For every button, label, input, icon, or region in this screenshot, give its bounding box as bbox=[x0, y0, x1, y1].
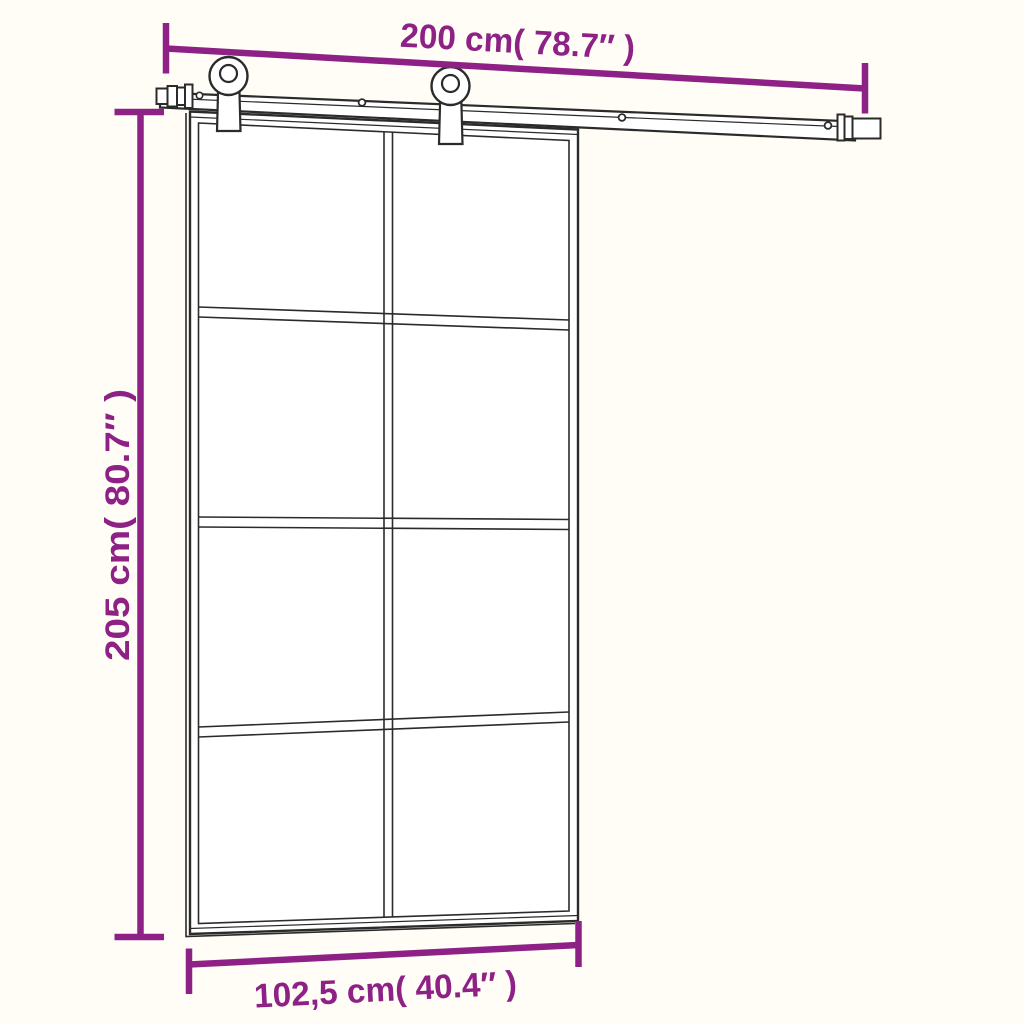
roller-hub-icon bbox=[220, 65, 237, 82]
track-screw-icon bbox=[619, 114, 626, 121]
right-end-stop bbox=[838, 115, 881, 141]
diagram-canvas: 200 cm( 78.7″ ) 205 cm( 80.7″ ) 102,5 cm… bbox=[0, 0, 1024, 1024]
sliding-door bbox=[186, 112, 578, 937]
product-dimension-diagram: 200 cm( 78.7″ ) 205 cm( 80.7″ ) 102,5 cm… bbox=[0, 0, 1024, 1024]
dimension-label-door-height: 205 cm( 80.7″ ) bbox=[99, 389, 137, 661]
roller-hub-icon bbox=[442, 75, 459, 92]
track-screw-icon bbox=[825, 122, 832, 129]
end-stop-screw-icon bbox=[196, 92, 202, 98]
track-screw-icon bbox=[359, 99, 366, 106]
